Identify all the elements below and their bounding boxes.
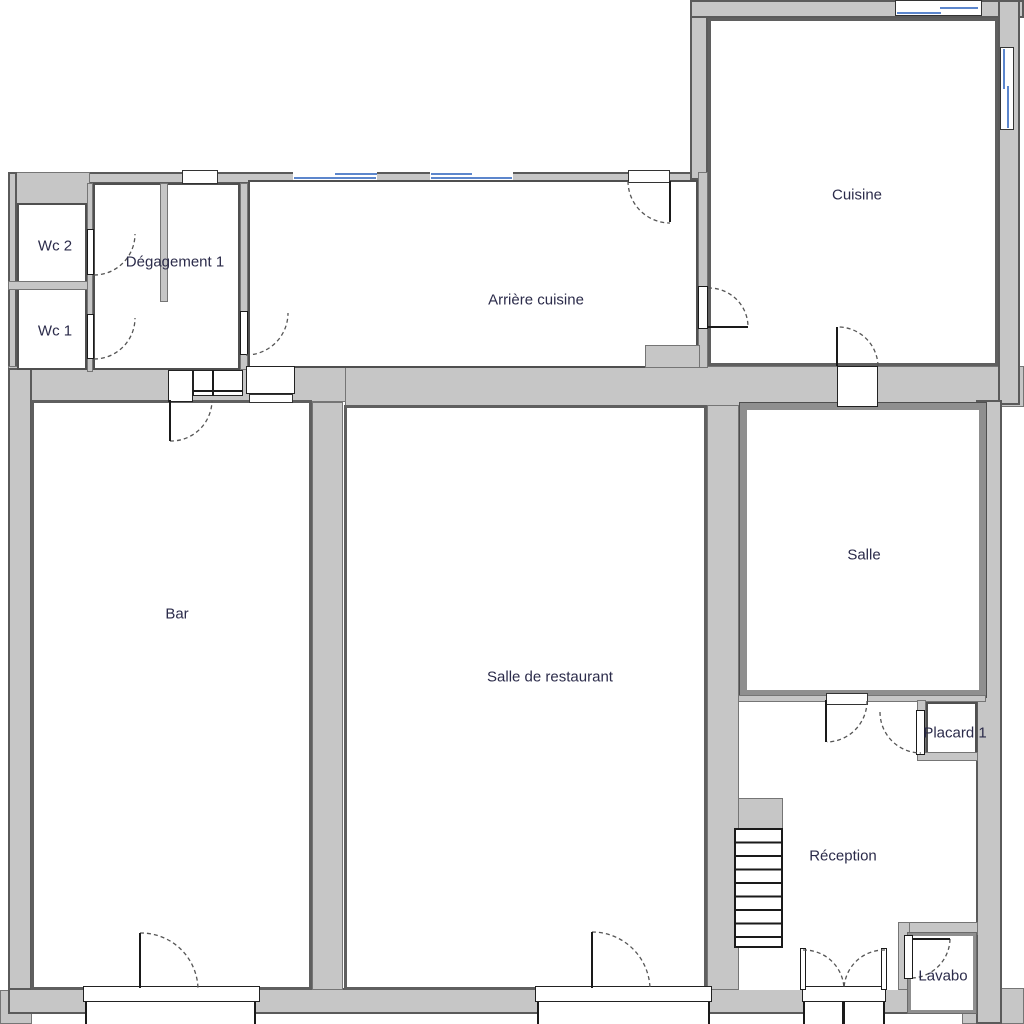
arriere-window-2-glass-a (431, 173, 472, 175)
arriere-window-2-glass-b (431, 177, 512, 179)
room-label-salle: Salle (847, 547, 880, 564)
room-bar (31, 400, 312, 990)
room-label-wc1: Wc 1 (38, 323, 72, 340)
cuisine-right-window-glass-a (1003, 49, 1005, 89)
degagement-bar-door-opening[interactable] (168, 370, 193, 402)
serving-hatch-opening[interactable] (246, 366, 295, 394)
double-door-left-leaf[interactable] (800, 948, 806, 990)
room-label-arriere-cuisine: Arrière cuisine (488, 292, 584, 309)
wall-cuisine-left (690, 0, 708, 180)
lavabo-door-leaf[interactable] (904, 935, 913, 979)
cuisine-top-window-glass-b (897, 12, 941, 14)
bar-entrance-opening[interactable] (83, 986, 260, 1002)
hatch-divider-vertical (212, 370, 214, 396)
double-door-right-leaf[interactable] (881, 948, 887, 990)
salle-reception-door-opening[interactable] (826, 693, 868, 705)
reception-entrance-opening[interactable] (802, 986, 886, 1002)
wall-bump-arriere (645, 345, 700, 368)
floor-plan: Wc 2 Wc 1 Dégagement 1 Arrière cuisine C… (0, 0, 1024, 1024)
serving-hatch-lower (249, 394, 293, 403)
arriere-window-1-glass-a (335, 173, 377, 175)
arriere-cuisine-door-leaf[interactable] (698, 286, 708, 329)
wall-arriere-cuisine-divider (698, 172, 708, 368)
room-label-cuisine: Cuisine (832, 187, 882, 204)
cuisine-right-window-glass-b (1007, 86, 1009, 128)
room-label-bar: Bar (165, 606, 188, 623)
room-label-placard1: Placard 1 (923, 725, 986, 742)
room-label-wc2: Wc 2 (38, 238, 72, 255)
degagement-arriere-door-leaf[interactable] (240, 311, 248, 355)
wall-left-lower (8, 368, 32, 1024)
hatch-boxes (193, 370, 243, 396)
room-salle-de-restaurant (344, 405, 707, 990)
arriere-window-1-glass-b (294, 177, 376, 179)
wall-stub-degagement (160, 183, 168, 302)
wall-bar-restaurant (312, 402, 343, 990)
wall-placard-bottom (917, 752, 978, 761)
back-door-opening[interactable] (182, 170, 218, 184)
room-label-lavabo: Lavabo (918, 968, 967, 985)
room-label-reception: Réception (809, 848, 877, 865)
restaurant-porch (537, 1002, 710, 1024)
wall-left-upper (8, 172, 17, 372)
bar-porch (85, 1002, 256, 1024)
room-label-salle-de-restaurant: Salle de restaurant (487, 669, 613, 686)
hatch-divider-horizontal (193, 390, 243, 392)
arriere-top-door-opening[interactable] (628, 170, 670, 183)
room-arriere-cuisine (248, 180, 698, 368)
wc2-door-leaf[interactable] (87, 229, 94, 275)
wall-wc-divider (8, 281, 90, 290)
wall-stair-landing (738, 798, 783, 830)
restaurant-entrance-opening[interactable] (535, 986, 712, 1002)
wc1-door-leaf[interactable] (87, 314, 94, 359)
wall-band-center (345, 366, 1024, 407)
staircase (734, 828, 783, 948)
cuisine-salle-door-opening[interactable] (837, 366, 878, 407)
room-label-degagement1: Dégagement 1 (126, 254, 224, 271)
cuisine-top-window-glass-a (940, 7, 978, 9)
reception-porch-divider (842, 1002, 845, 1024)
wall-block-above-wc2 (8, 172, 90, 205)
